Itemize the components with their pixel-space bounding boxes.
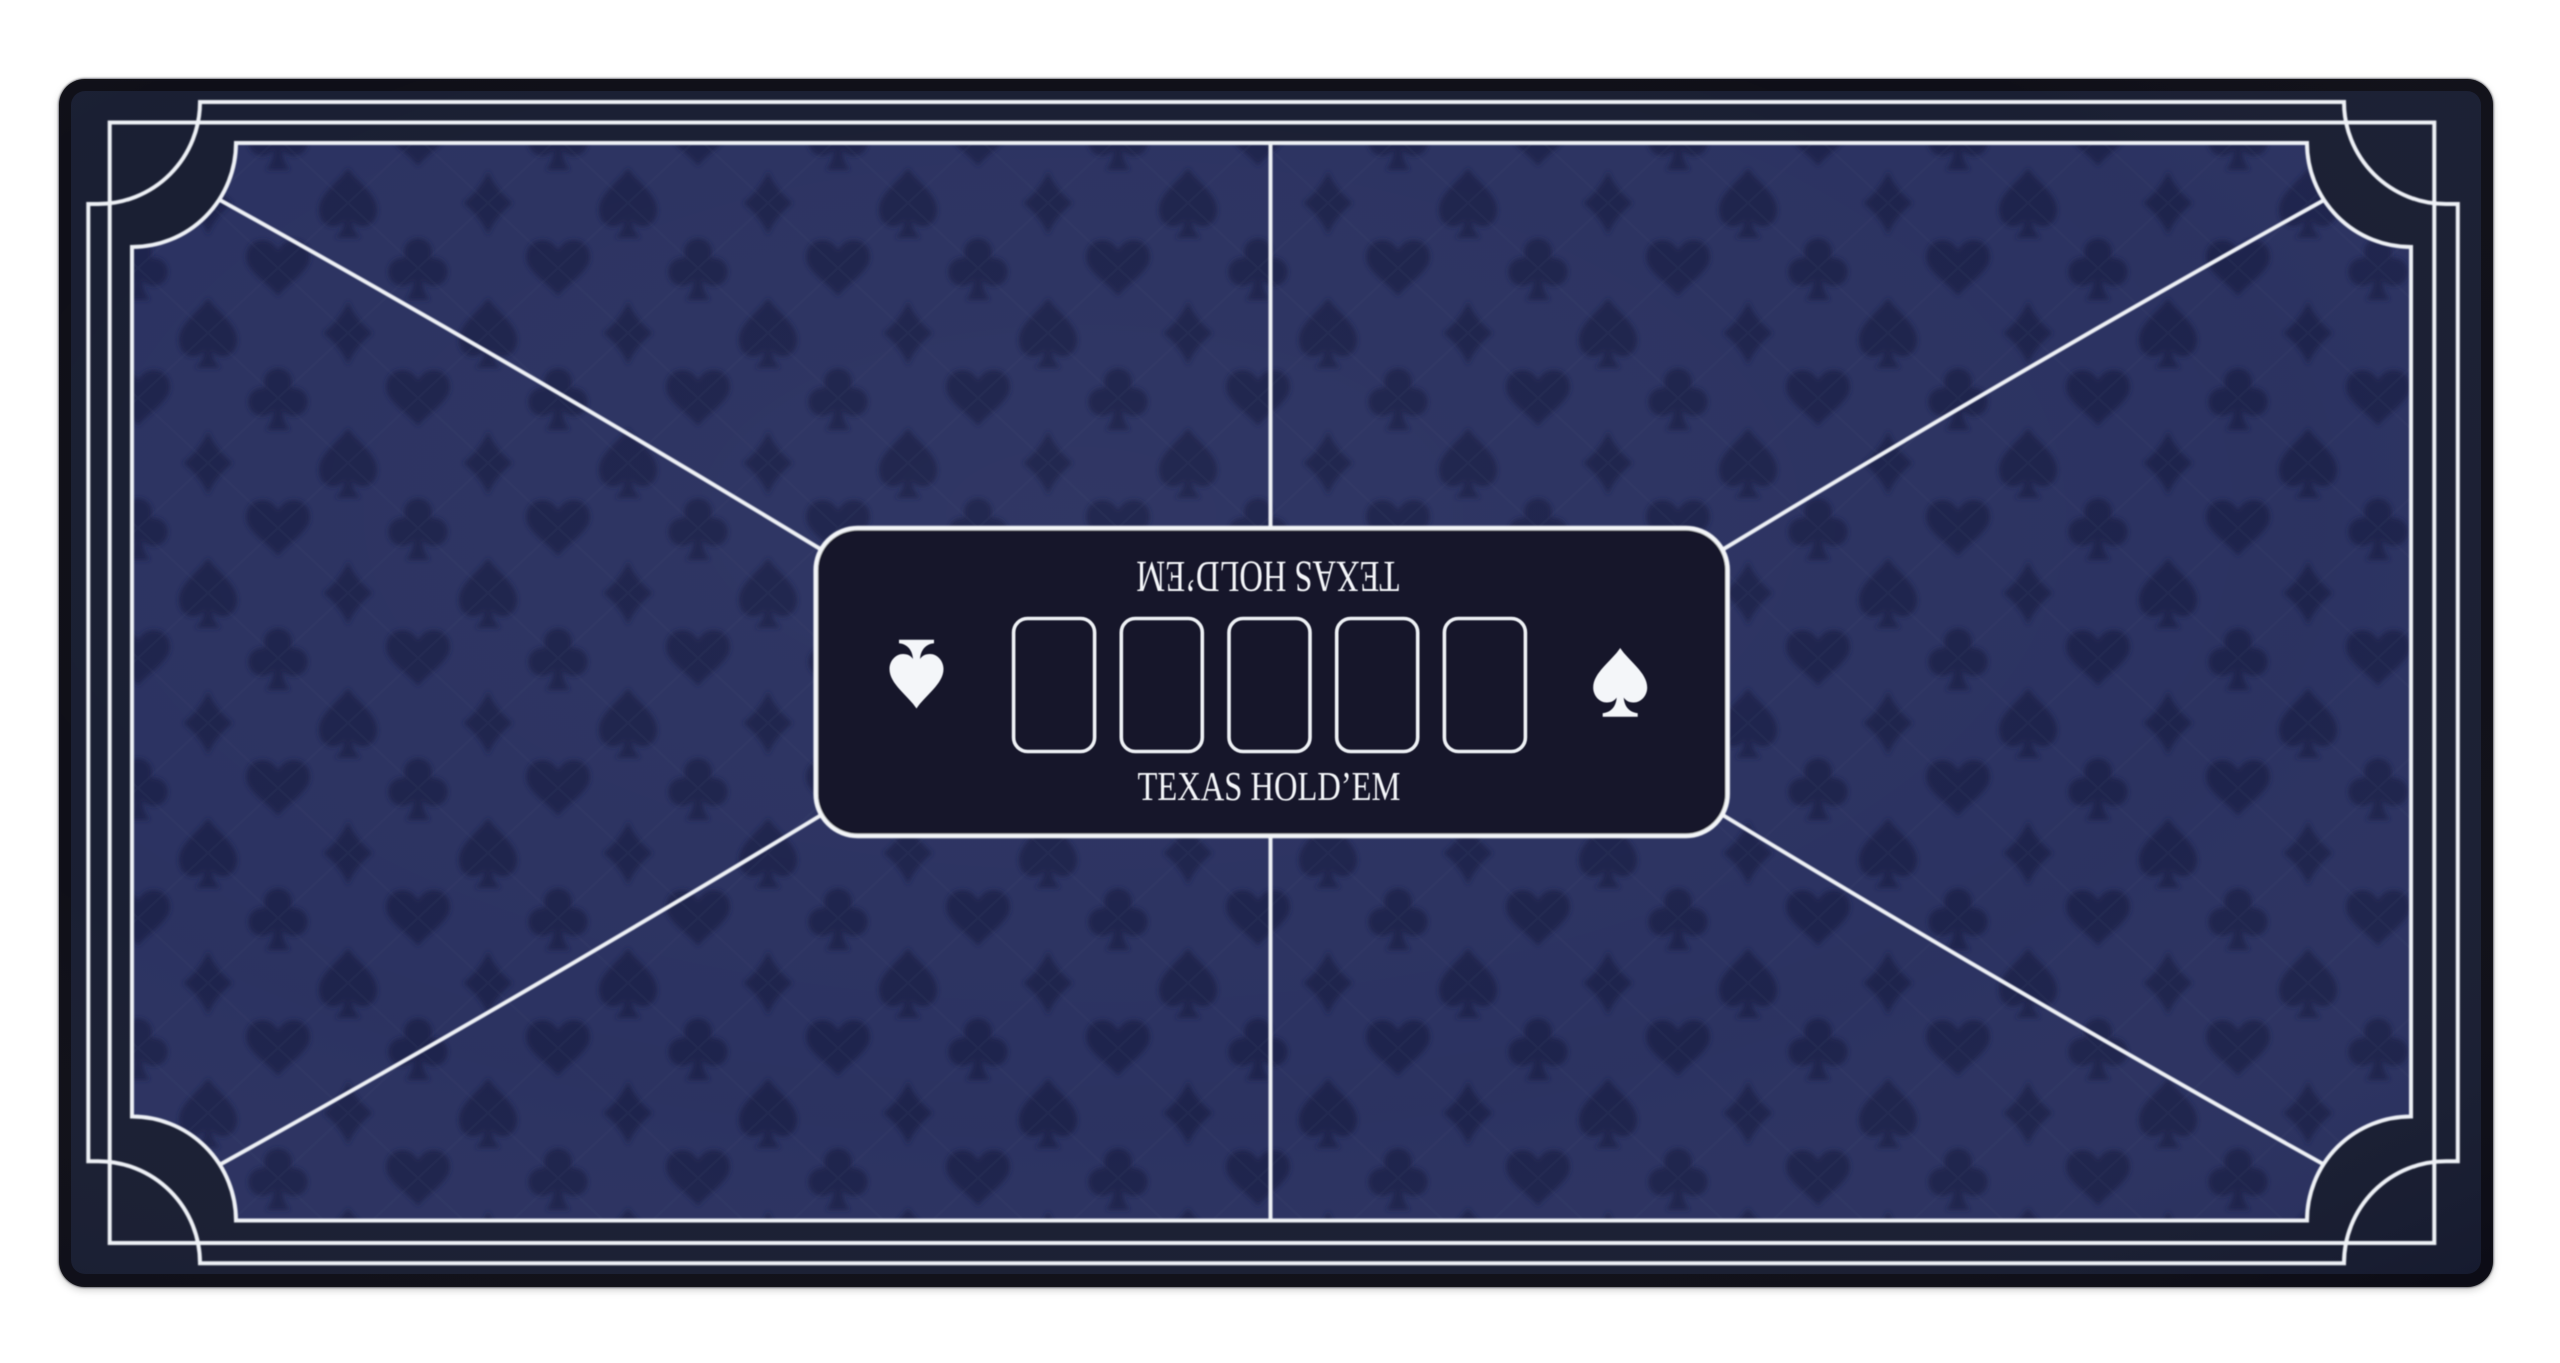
svg-text:TEXAS HOLD’EM: TEXAS HOLD’EM xyxy=(1136,552,1399,601)
svg-text:TEXAS HOLD’EM: TEXAS HOLD’EM xyxy=(1138,763,1401,809)
